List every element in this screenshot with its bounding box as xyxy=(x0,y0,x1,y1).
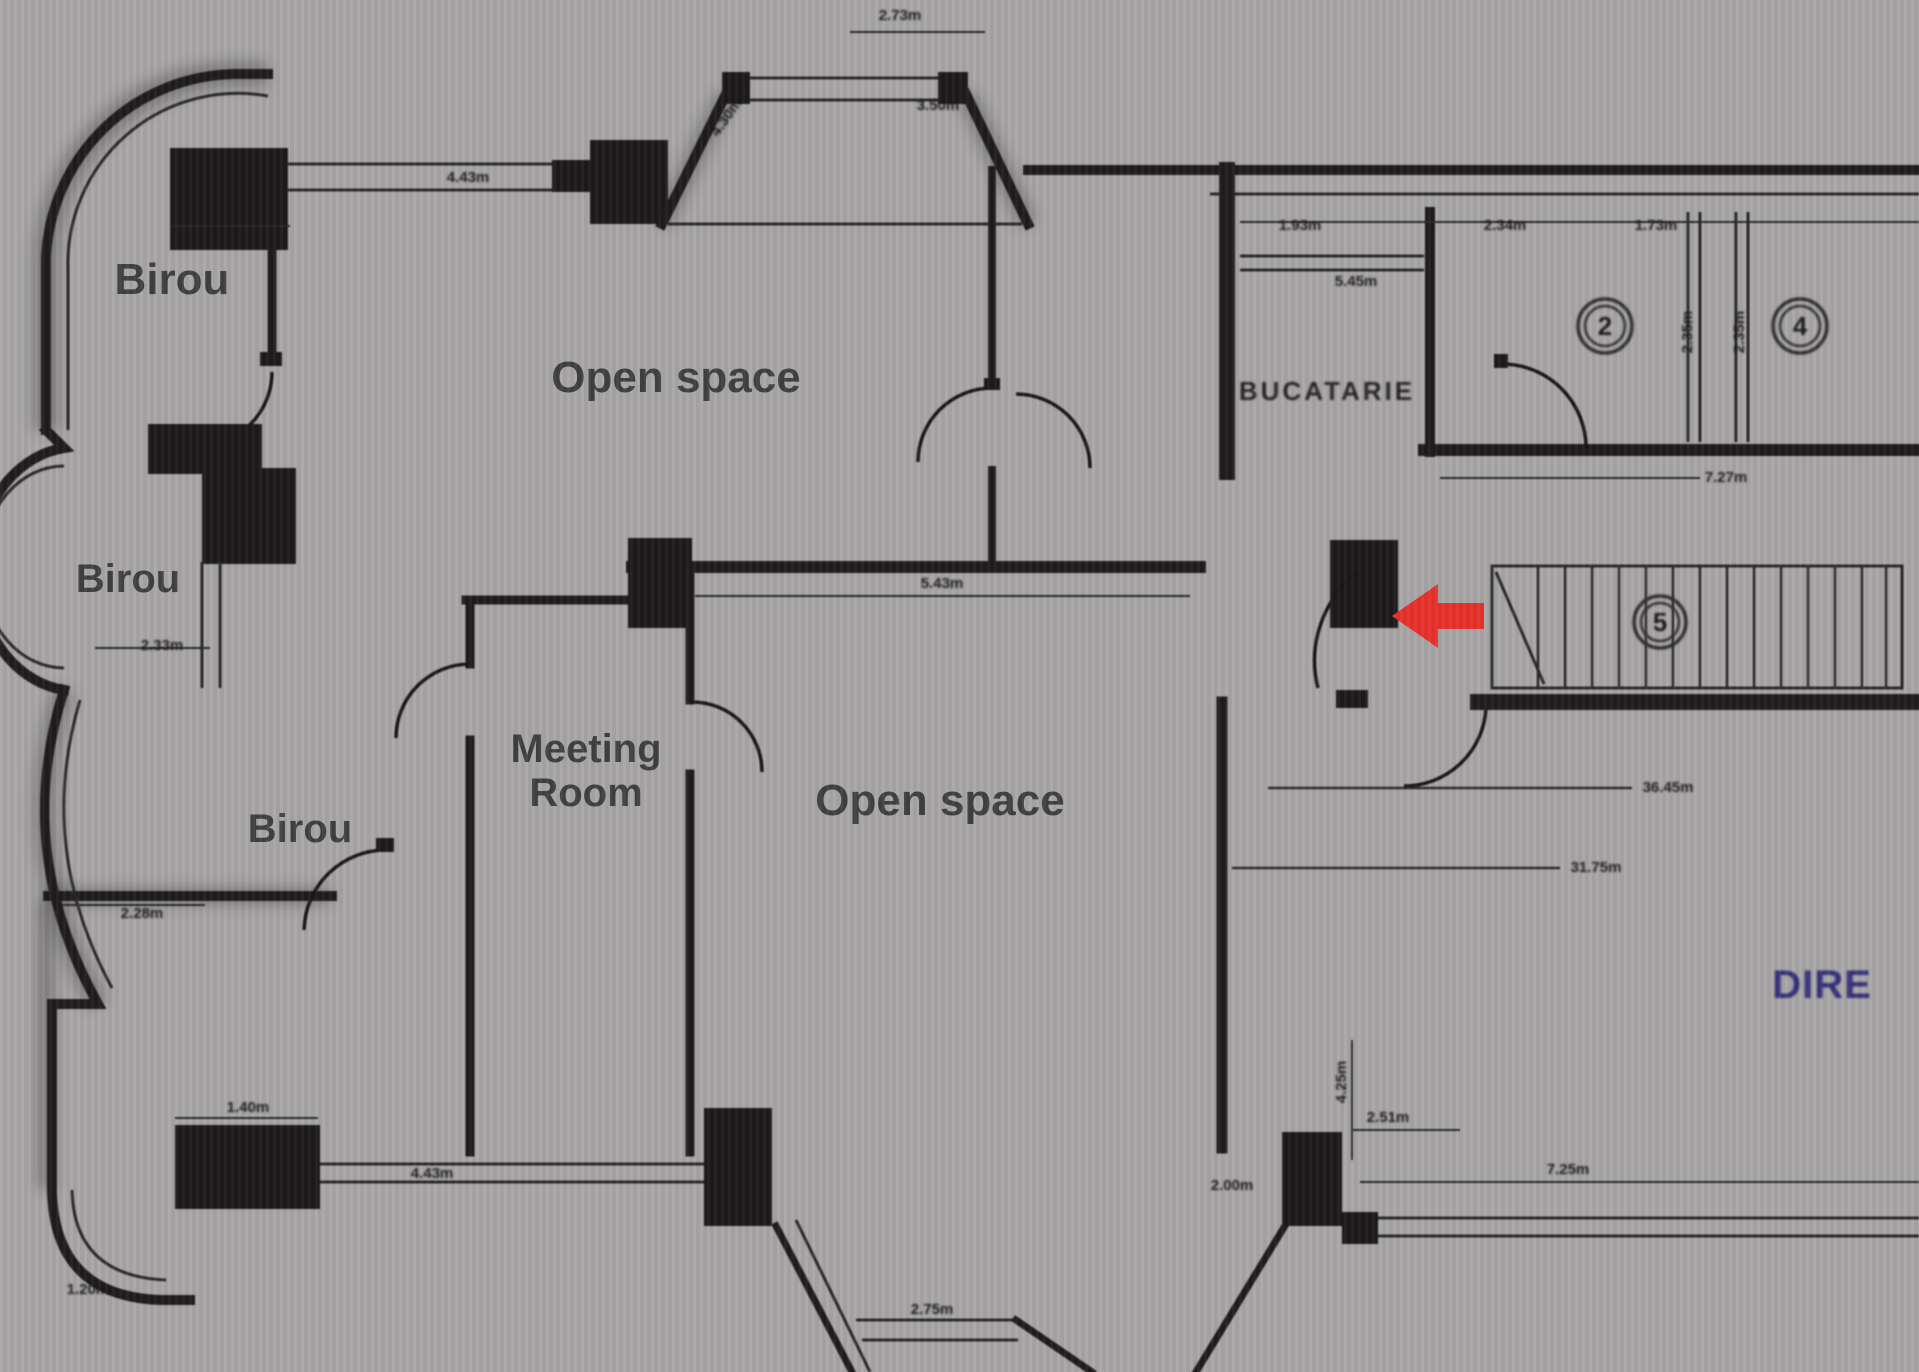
shadow-stroke xyxy=(46,74,268,430)
room-number-badge: 4 xyxy=(1773,299,1827,353)
dimension-label: 5.43m xyxy=(921,575,964,592)
dimension-label: 2.51m xyxy=(1367,1109,1410,1126)
dimension-label: 3.50m xyxy=(917,97,960,114)
wall-pier xyxy=(704,1108,772,1226)
floor-plan-canvas: BUCATARIE 2 4 5 1.40m 4.43m 4.30m 2.73m … xyxy=(0,0,1919,1372)
door-arc xyxy=(396,664,470,738)
red-arrow-annotation xyxy=(1392,584,1484,648)
dimension-label: 1.40m xyxy=(197,223,240,240)
dimension-label: 7.25m xyxy=(1547,1161,1590,1178)
dimension-label: 2.00m xyxy=(1211,1177,1254,1194)
door-arc xyxy=(1502,364,1586,448)
window-line xyxy=(0,466,64,668)
wall xyxy=(1016,1320,1092,1372)
door-arc xyxy=(1404,708,1486,786)
room-number: 2 xyxy=(1598,311,1612,341)
wall-pier xyxy=(628,538,692,628)
dimension-label: 4.43m xyxy=(447,169,490,186)
window-line xyxy=(320,1164,706,1182)
wall xyxy=(0,430,64,690)
wall-pier xyxy=(590,140,668,224)
dimension-label: 2.28m xyxy=(121,905,164,922)
window-line xyxy=(856,1320,1018,1340)
wall-pier xyxy=(1282,1132,1342,1226)
room-label: Room xyxy=(529,771,642,815)
partition-line xyxy=(202,562,220,688)
wall xyxy=(662,94,726,224)
walls-layer xyxy=(0,32,1919,1372)
wall xyxy=(776,1226,852,1372)
dimension-label: 4.43m xyxy=(411,1165,454,1182)
door-arc xyxy=(304,850,386,930)
scanned-text-layer: BUCATARIE 2 4 5 1.40m 4.43m 4.30m 2.73m … xyxy=(67,7,1827,1318)
dimension-label: 36.45m xyxy=(1643,779,1694,796)
digital-overlay-layer: Birou Open space Birou Meeting Room Biro… xyxy=(76,255,1872,1007)
stair-treads xyxy=(1538,566,1886,688)
kitchen-label: BUCATARIE xyxy=(1239,376,1415,406)
room-label: Birou xyxy=(76,557,180,601)
door-jamb xyxy=(1344,556,1370,572)
dimension-label: 7.27m xyxy=(1705,469,1748,486)
wall-pier xyxy=(175,1125,320,1209)
dimension-line xyxy=(1232,788,1632,868)
door-arc xyxy=(692,702,762,772)
wall-pier xyxy=(1330,540,1398,628)
dimension-label: 31.75m xyxy=(1571,859,1622,876)
room-label: Open space xyxy=(815,776,1064,825)
wall-pier xyxy=(202,468,296,564)
window-line xyxy=(796,1220,870,1372)
floor-plan-page: BUCATARIE 2 4 5 1.40m 4.43m 4.30m 2.73m … xyxy=(0,0,1919,1372)
watermark-text: DIRE xyxy=(1772,963,1872,1007)
stair-outline xyxy=(1492,566,1902,688)
window-line xyxy=(288,164,592,190)
wall-pier xyxy=(1342,1212,1378,1244)
dimension-label: 4.25m xyxy=(1333,1061,1350,1104)
door-jamb xyxy=(1494,354,1508,368)
door-arc xyxy=(1016,394,1090,468)
door-jamb xyxy=(1336,690,1368,708)
room-number-badge: 5 xyxy=(1634,596,1686,648)
dimension-label: 2.33m xyxy=(141,637,184,654)
dimension-label: 2.35m xyxy=(1731,311,1748,354)
dimension-label: 2.35m xyxy=(1679,311,1696,354)
wall xyxy=(1196,1224,1286,1372)
dimension-label: 2.73m xyxy=(879,7,922,24)
staircase xyxy=(1478,566,1919,702)
room-number-badge: 2 xyxy=(1578,299,1632,353)
dimension-label: 1.93m xyxy=(1279,217,1322,234)
wall-pier xyxy=(552,160,592,192)
wall-pier xyxy=(148,424,262,474)
dimension-label: 1.20m xyxy=(67,1281,110,1298)
room-label: Meeting xyxy=(510,727,661,771)
wall xyxy=(966,94,1028,224)
room-number: 5 xyxy=(1653,607,1667,637)
dimension-label: 5.45m xyxy=(1335,273,1378,290)
dimension-label: 2.34m xyxy=(1484,217,1527,234)
door-arc xyxy=(918,388,992,462)
door-jamb xyxy=(260,352,282,366)
window-line xyxy=(1240,256,1424,270)
room-label: Birou xyxy=(115,255,230,304)
dimension-label: 2.75m xyxy=(911,1301,954,1318)
room-number: 4 xyxy=(1793,311,1808,341)
dimension-label: 1.73m xyxy=(1635,217,1678,234)
room-label: Open space xyxy=(551,353,800,402)
dimension-label: 1.40m xyxy=(227,1099,270,1116)
wall xyxy=(46,74,268,430)
window-line xyxy=(1344,1218,1919,1236)
room-label: Birou xyxy=(248,807,352,851)
